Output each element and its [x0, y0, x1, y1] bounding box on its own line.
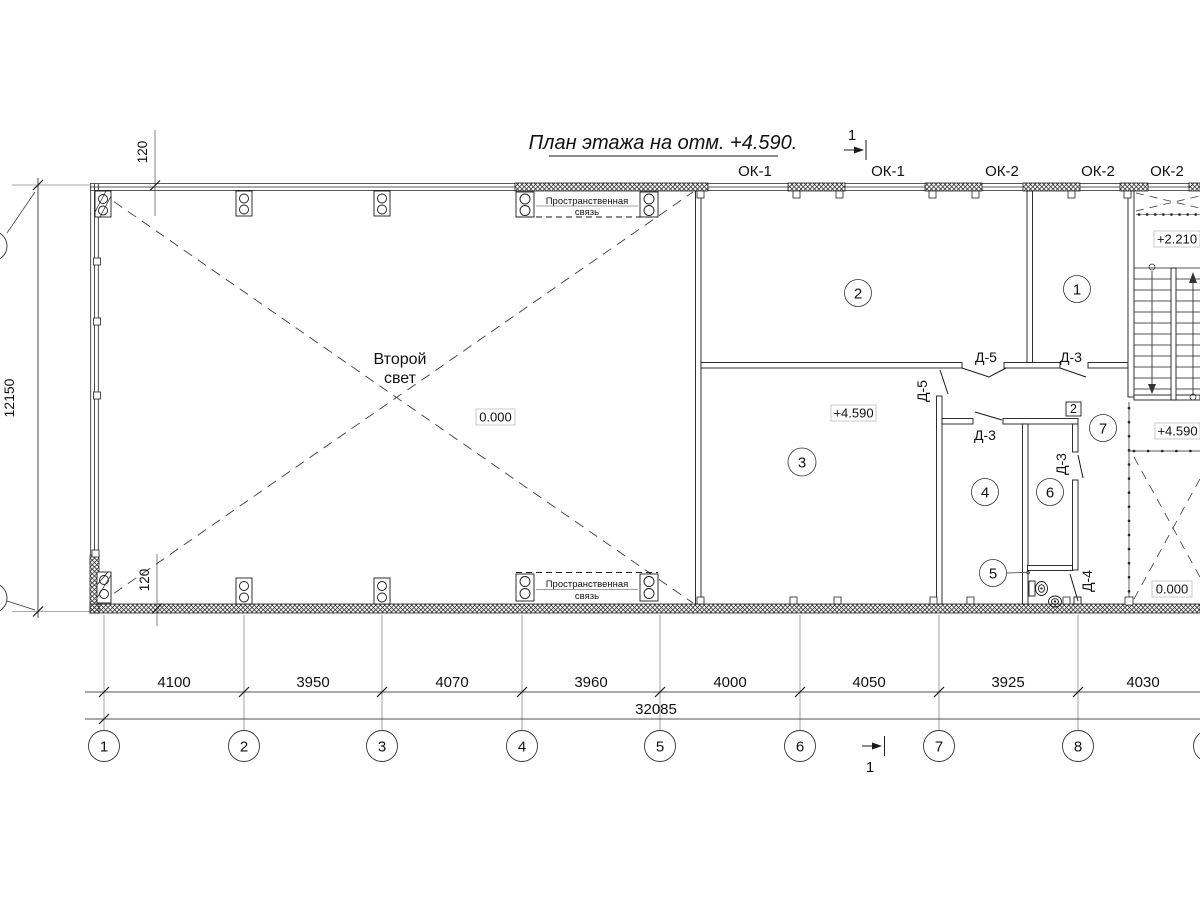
axis-1: 1 [100, 739, 108, 756]
dim-offset-top: 120 [135, 141, 150, 164]
sanitary-fixtures [1029, 581, 1062, 607]
interior-walls [696, 191, 1200, 604]
hall-cross-lines [100, 192, 693, 603]
elevation-hall: 0.000 [479, 410, 512, 425]
dim-bay-2: 3950 [296, 674, 329, 691]
spatial-brace-bottom: Пространственная связь [516, 573, 658, 603]
columns [95, 191, 390, 604]
section-mark-bottom: 1 [862, 736, 885, 776]
bottom-wall [90, 604, 1200, 613]
spatial-brace-bottom-line1: Пространственная [546, 579, 629, 590]
room-number-5: 5 [989, 566, 997, 583]
second-light-line2: свет [384, 370, 417, 387]
window-label-ok2-b: ОК-2 [1081, 163, 1115, 180]
wall-jamb-marks [92, 191, 1131, 604]
room-number-3: 3 [798, 455, 806, 472]
window-label-ok2-a: ОК-2 [985, 163, 1019, 180]
bay-dimension-labels: 4100 3950 4070 3960 4000 4050 3925 4030 [157, 674, 1159, 691]
door-label-d5: Д-5 [975, 349, 997, 365]
room-number-7: 7 [1099, 421, 1107, 438]
elevation-stair-mid: +2.210 [1157, 232, 1197, 247]
dimension-ticks [99, 687, 1083, 724]
window-label-ok1-b: ОК-1 [871, 163, 905, 180]
level-marker-value: 2 [1070, 402, 1077, 416]
drawing-title: План этажа на отм. +4.590. [529, 132, 798, 154]
dim-bay-3: 4070 [435, 674, 468, 691]
window-labels: ОК-1 ОК-1 ОК-2 ОК-2 ОК-2 [738, 163, 1184, 180]
drawing-title-group: План этажа на отм. +4.590. [529, 132, 798, 156]
axis-5: 5 [656, 739, 664, 756]
spatial-brace-top: Пространственная связь [516, 192, 658, 218]
door-label-d5-vert: Д-5 [914, 380, 930, 402]
toilet [1029, 581, 1048, 596]
room-markers: 1 2 3 4 5 6 7 2 [788, 276, 1117, 587]
room-number-4: 4 [981, 485, 989, 502]
window-label-ok1-a: ОК-1 [738, 163, 772, 180]
room-number-2: 2 [854, 286, 862, 303]
bottom-dimensions: 4100 3950 4070 3960 4000 4050 3925 4030 … [85, 615, 1200, 730]
door-label-d3-2: Д-3 [974, 427, 996, 443]
dim-side: 12150 [1, 378, 17, 417]
exterior-walls [90, 183, 1200, 613]
second-light-line1: Второй [374, 351, 427, 368]
dim-bay-6: 4050 [852, 674, 885, 691]
left-wall [91, 184, 99, 555]
axis-8: 8 [1074, 739, 1082, 756]
window-label-ok2-c: ОК-2 [1150, 163, 1184, 180]
elevation-void: 0.000 [1156, 582, 1189, 597]
axis-4: 4 [518, 739, 526, 756]
dim-offset-bottom: 120 [137, 569, 152, 592]
door-label-d3: Д-3 [1060, 349, 1082, 365]
dim-total: 32085 [635, 701, 677, 718]
staircase [1134, 193, 1200, 400]
dim-bay-5: 4000 [713, 674, 746, 691]
elevation-stair-landing: +4.590 [1157, 424, 1197, 439]
spatial-brace-bottom-line2: связь [575, 591, 599, 602]
dim-bay-7: 3925 [991, 674, 1024, 691]
left-dimensions: 12150 120 120 [0, 130, 162, 626]
floor-plan-page: Пространственная связь Пространственная … [0, 0, 1200, 900]
door-label-d4-vert: Д-4 [1079, 570, 1095, 592]
section-label-bottom: 1 [866, 759, 874, 776]
stair-up-arrow [1189, 272, 1197, 283]
door-label-d3-vert: Д-3 [1053, 453, 1069, 475]
grid-axes: 1 2 3 4 5 6 7 8 [89, 731, 1200, 762]
elevation-marks: 0.000 +4.590 +2.210 +4.590 0.000 [476, 231, 1200, 597]
axis-3: 3 [378, 739, 386, 756]
dim-bay-8: 4030 [1126, 674, 1159, 691]
spatial-brace-top-line1: Пространственная [546, 196, 629, 207]
axis-2: 2 [240, 739, 248, 756]
column-a1-bottom [97, 572, 111, 603]
second-light-annotation: Второй свет [374, 351, 427, 387]
section-mark-top: 1 [844, 127, 866, 160]
floor-plan-drawing: Пространственная связь Пространственная … [0, 0, 1200, 900]
column-a1-top [95, 191, 111, 217]
axis-7: 7 [935, 739, 943, 756]
section-arrow-bottom [872, 743, 882, 750]
axis-6: 6 [796, 739, 804, 756]
elevation-floor: +4.590 [833, 406, 873, 421]
spatial-brace-top-line2: связь [575, 207, 599, 218]
section-label-top: 1 [848, 127, 856, 144]
dim-bay-1: 4100 [157, 674, 190, 691]
room-number-1: 1 [1073, 282, 1081, 299]
dim-bay-4: 3960 [574, 674, 607, 691]
stair-stringer [1171, 268, 1176, 400]
section-arrow-top [854, 147, 864, 154]
room-number-6: 6 [1046, 485, 1054, 502]
